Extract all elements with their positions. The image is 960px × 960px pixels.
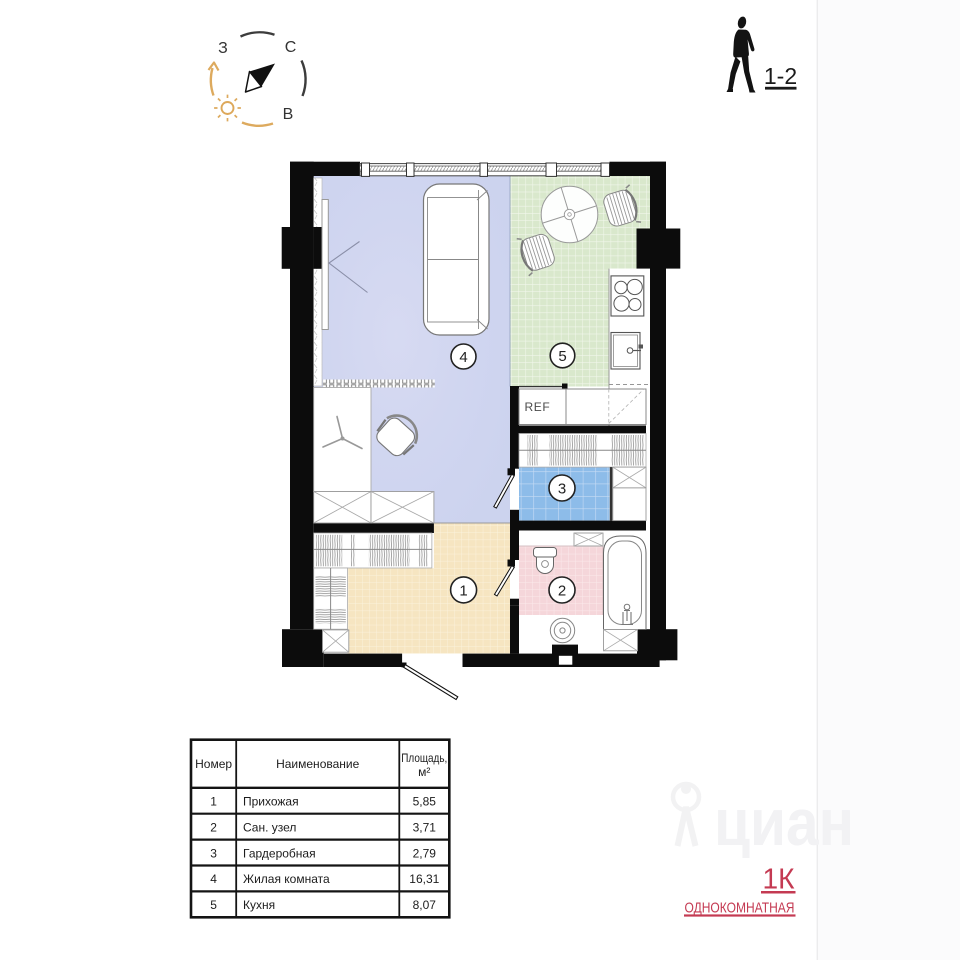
svg-text:1: 1 [210, 795, 217, 809]
svg-text:м²: м² [418, 765, 430, 779]
svg-text:Жилая комната: Жилая комната [243, 872, 330, 886]
svg-text:ОДНОКОМНАТНАЯ: ОДНОКОМНАТНАЯ [685, 900, 795, 917]
svg-text:2,79: 2,79 [413, 846, 437, 860]
svg-text:Прихожая: Прихожая [243, 795, 299, 809]
svg-text:Площадь,: Площадь, [401, 751, 447, 765]
svg-text:Кухня: Кухня [243, 898, 275, 912]
svg-text:5,85: 5,85 [413, 795, 437, 809]
svg-text:2: 2 [558, 583, 566, 600]
svg-text:4: 4 [210, 872, 217, 886]
svg-text:Номер: Номер [195, 757, 232, 771]
svg-text:2: 2 [210, 820, 217, 834]
svg-text:З: З [218, 40, 228, 57]
svg-text:3: 3 [558, 481, 566, 498]
svg-text:5: 5 [210, 898, 217, 912]
svg-text:В: В [283, 106, 294, 123]
svg-text:5: 5 [558, 348, 566, 365]
svg-text:16,31: 16,31 [409, 872, 439, 886]
svg-text:1К: 1К [763, 864, 795, 896]
svg-text:8,07: 8,07 [413, 898, 437, 912]
svg-text:1-2: 1-2 [764, 63, 797, 89]
svg-text:Наименование: Наименование [276, 757, 360, 771]
svg-text:3: 3 [210, 846, 217, 860]
svg-text:циан: циан [714, 785, 854, 859]
svg-text:Сан. узел: Сан. узел [243, 820, 296, 834]
svg-text:С: С [285, 39, 297, 56]
svg-text:Гардеробная: Гардеробная [243, 846, 316, 860]
svg-text:1: 1 [459, 582, 467, 599]
svg-text:3,71: 3,71 [413, 820, 437, 834]
svg-text:REF: REF [525, 400, 551, 414]
svg-text:4: 4 [459, 349, 467, 366]
